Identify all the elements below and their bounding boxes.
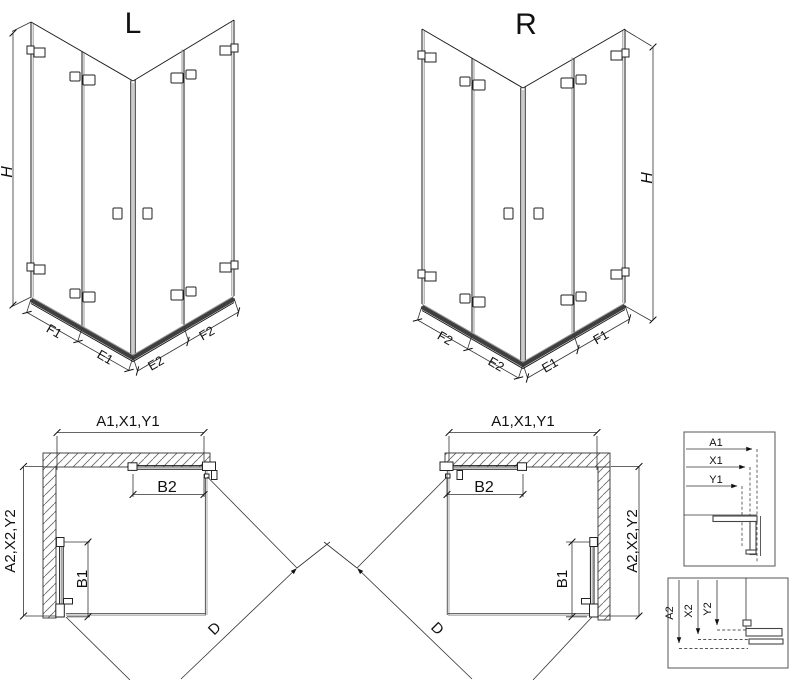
iso-left-glass-panels — [31, 20, 234, 355]
dim-label-a2x2y2: A2,X2,Y2 — [2, 509, 19, 572]
detail-label-a2: A2 — [664, 606, 676, 619]
dim-b1: B1 — [64, 539, 91, 621]
wall-top — [43, 453, 210, 467]
dim-b2: B2 — [444, 474, 527, 498]
wall-right — [598, 467, 610, 620]
iso-right-height-dimension: H — [625, 30, 656, 323]
dim-label-b2: B2 — [474, 479, 494, 496]
detail-label-y2: Y2 — [702, 602, 714, 615]
folded-door-right — [582, 538, 599, 618]
dim-d-diagonal: D — [358, 569, 473, 680]
dim-label-d: D — [427, 619, 447, 639]
dim-label-b1: B1 — [554, 570, 571, 588]
dim-label-a1x1y1: A1,X1,Y1 — [96, 413, 159, 430]
open-door-swing — [324, 477, 592, 680]
plan-view-right: A1,X1,Y1 A2,X2,Y2 B2 B1 D — [324, 413, 642, 680]
open-door-swing — [66, 477, 330, 680]
iso-left-title: L — [125, 7, 142, 40]
wall-bracket-icon — [27, 46, 45, 57]
detail-box-depth-profile: A2 X2 Y2 — [664, 578, 788, 668]
dim-label-b2: B2 — [157, 479, 177, 496]
detail-box-border — [668, 578, 788, 668]
height-dim-label: H — [0, 166, 16, 178]
wall-bracket-icon — [418, 51, 436, 62]
detail-label-y1: Y1 — [709, 474, 722, 486]
detail-label-x2: X2 — [683, 604, 695, 617]
dim-b2: B2 — [130, 474, 208, 498]
dim-label-f2: F2 — [435, 328, 456, 349]
detail-label-x1: X1 — [709, 455, 722, 467]
iso-view-left: L H — [0, 7, 243, 376]
folded-door-left — [56, 538, 73, 618]
door-handle-icon — [534, 208, 543, 219]
dim-label-d: D — [205, 619, 225, 639]
drawing-svg: L H — [0, 0, 800, 680]
dim-label-b1: B1 — [74, 570, 91, 588]
iso-right-glass-panels — [422, 29, 625, 362]
door-handle-icon — [504, 208, 513, 219]
wall-bracket-icon — [220, 261, 238, 272]
technical-drawing-canvas: L H — [0, 0, 800, 680]
height-dim-label: H — [639, 172, 656, 184]
dim-label-a1x1y1: A1,X1,Y1 — [491, 413, 554, 430]
detail-box-border — [684, 432, 775, 566]
door-handle-icon — [143, 208, 152, 219]
wall-bracket-icon — [27, 263, 45, 274]
iso-right-title: R — [515, 8, 537, 41]
wall-bracket-icon — [611, 268, 629, 279]
wall-bracket-icon — [418, 270, 436, 281]
dim-label-e2: E2 — [486, 354, 507, 375]
dim-label-a2x2y2: A2,X2,Y2 — [624, 509, 641, 572]
dim-d-diagonal: D — [181, 569, 297, 680]
dim-label-f1: F1 — [590, 327, 611, 348]
dim-b1: B1 — [554, 539, 590, 621]
wall-left — [43, 467, 56, 618]
wall-bracket-icon — [220, 44, 238, 55]
detail-box-width-profile: A1 X1 Y1 — [684, 432, 775, 566]
fixed-glass-panels — [447, 467, 590, 615]
door-handle-icon — [113, 208, 122, 219]
wall-bracket-icon — [611, 49, 629, 60]
iso-view-right: R H — [413, 8, 657, 383]
iso-left-height-dimension: H — [0, 22, 31, 308]
wall-top — [445, 453, 610, 467]
plan-view-left: A1,X1,Y1 A2,X2,Y2 B2 B1 D — [2, 413, 330, 680]
fixed-glass-panels — [66, 467, 207, 615]
detail-label-a1: A1 — [709, 437, 722, 449]
